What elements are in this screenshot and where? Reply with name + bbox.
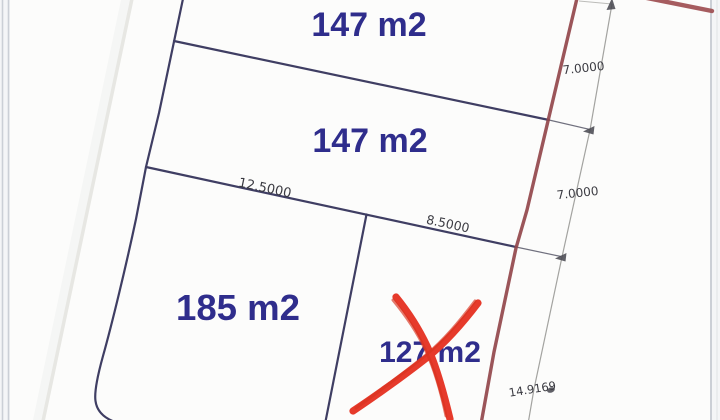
north-marked-boundary-line [642, 0, 712, 11]
parcel-divider-top-extension [549, 120, 590, 130]
road-edge-line [42, 0, 133, 420]
road-shading [33, 0, 131, 420]
right-page-margin [712, 0, 720, 420]
parcel-2-area-label: 147 m2 [312, 122, 427, 160]
site-plan: 147 m2 147 m2 185 m2 127 m2 12.5000 8.50… [0, 0, 720, 420]
parcel-divider-top [174, 41, 549, 120]
dimension-label-east-top: 7.0000 [562, 59, 605, 77]
parcel-divider-vertical [325, 215, 367, 420]
plot-drawing: 147 m2 147 m2 185 m2 127 m2 12.5000 8.50… [0, 0, 720, 420]
dimension-arrow-top [607, 0, 616, 10]
dimension-label-east-middle: 7.0000 [556, 184, 599, 202]
parcel-divider-middle [146, 167, 516, 247]
parcel-1-area-label: 147 m2 [311, 6, 426, 44]
parcel-3-area-label: 185 m2 [176, 287, 300, 328]
dimension-extension-line [579, 1, 612, 4]
parcel-divider-middle-extension [516, 247, 561, 257]
dimension-label-upper-boundary: 12.5000 [237, 176, 293, 202]
